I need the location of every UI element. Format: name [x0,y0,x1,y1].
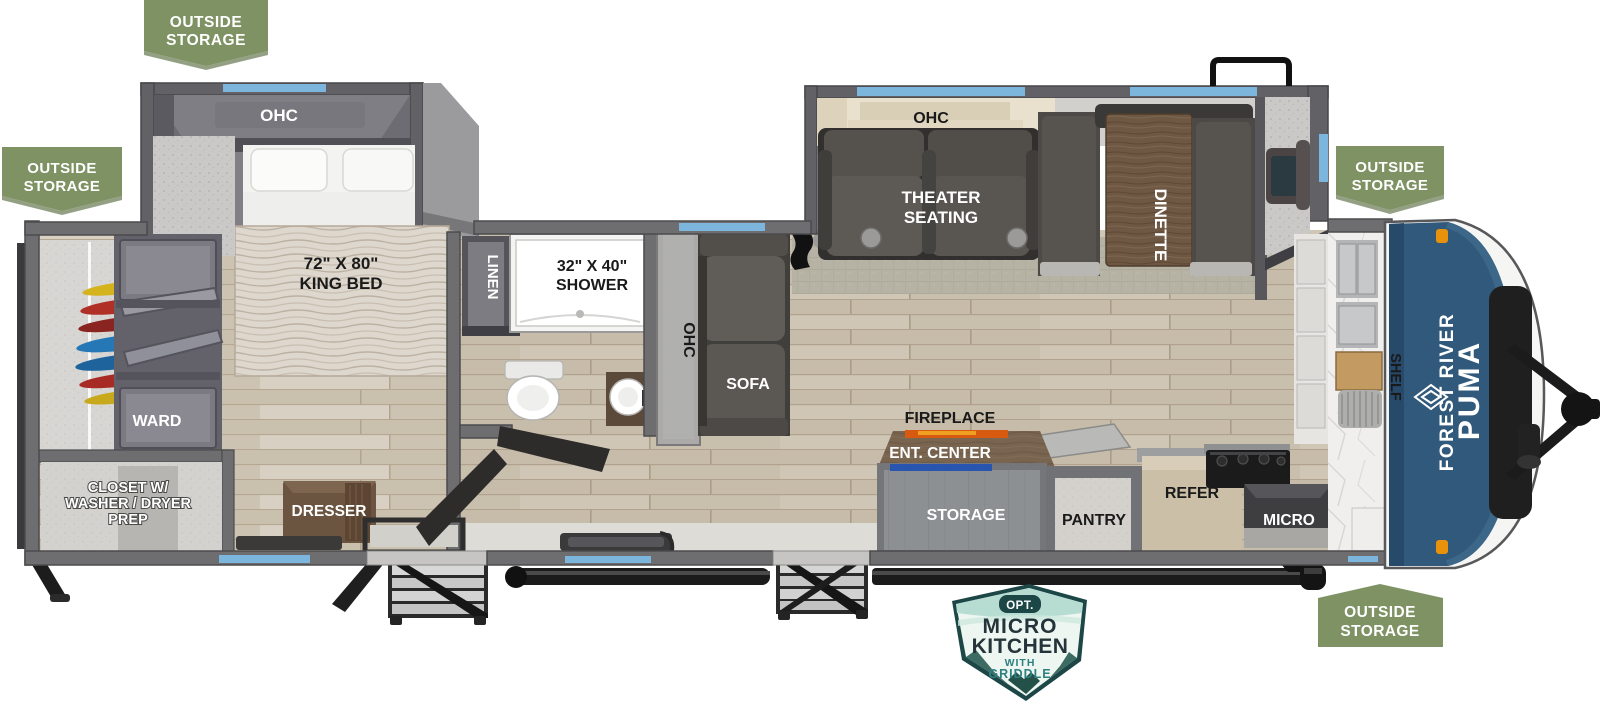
svg-text:REFER: REFER [1165,485,1220,502]
svg-text:CLOSET W/: CLOSET W/ [88,480,169,496]
svg-text:SHELF: SHELF [1387,353,1403,401]
svg-text:GRIDDLE: GRIDDLE [988,667,1051,681]
svg-text:THEATER: THEATER [901,188,980,207]
svg-text:STORAGE: STORAGE [927,507,1006,524]
svg-text:PANTRY: PANTRY [1062,512,1126,529]
svg-text:MICRO: MICRO [1263,512,1315,529]
svg-text:SOFA: SOFA [726,376,770,393]
svg-text:STORAGE: STORAGE [24,178,101,195]
svg-text:PREP: PREP [108,512,148,528]
svg-text:STORAGE: STORAGE [1340,623,1419,640]
svg-text:PUMA: PUMA [1453,340,1486,440]
svg-text:LINEN: LINEN [484,255,501,300]
svg-text:WARD: WARD [133,413,182,430]
svg-text:STORAGE: STORAGE [166,32,246,49]
svg-text:STORAGE: STORAGE [1352,177,1429,194]
svg-text:OHC: OHC [260,106,298,125]
svg-text:32" X 40": 32" X 40" [557,258,627,275]
svg-text:DINETTE: DINETTE [1151,189,1170,262]
svg-text:SEATING: SEATING [904,208,978,227]
svg-text:KITCHEN: KITCHEN [972,635,1069,658]
svg-text:OUTSIDE: OUTSIDE [170,14,242,31]
svg-text:DRESSER: DRESSER [292,503,367,520]
svg-text:OUTSIDE: OUTSIDE [1355,159,1424,176]
svg-text:ENT. CENTER: ENT. CENTER [889,445,991,462]
svg-text:OPT.: OPT. [1006,600,1034,612]
svg-text:SHOWER: SHOWER [556,277,628,294]
svg-text:FIREPLACE: FIREPLACE [905,410,996,427]
svg-text:OUTSIDE: OUTSIDE [27,160,96,177]
svg-text:OUTSIDE: OUTSIDE [1344,604,1416,621]
svg-text:WASHER / DRYER: WASHER / DRYER [65,496,191,512]
svg-text:72" X 80": 72" X 80" [304,254,379,273]
svg-text:OHC: OHC [913,110,949,127]
svg-text:OHC: OHC [680,322,697,358]
svg-text:KING BED: KING BED [299,274,382,293]
